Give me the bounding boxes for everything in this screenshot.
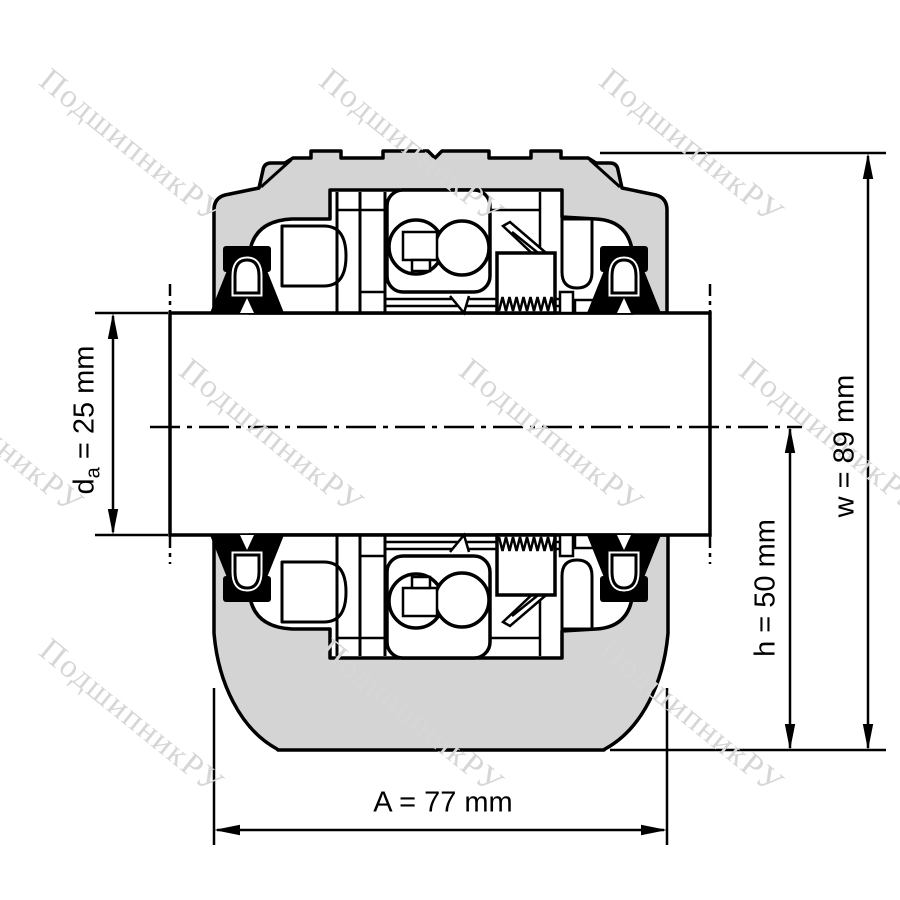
label-bore-subscript: a [83,467,105,478]
label-total-height: w = 89 mm [829,375,862,518]
label-bore-diameter: da = 25 mm [69,346,106,495]
label-center-height: h = 50 mm [750,519,783,657]
arrowhead-down [108,509,118,535]
arrowhead-up [785,427,795,453]
arrowhead-up [863,153,873,179]
technical-drawing-page: ПодшипникРУ ПодшипникРУ ПодшипникРУ Подш… [0,0,900,900]
label-total-width: A = 77 mm [373,787,512,820]
arrowhead-left [214,825,240,835]
arrowhead-down [785,724,795,750]
arrowhead-right [641,825,667,835]
shaft [170,313,710,535]
arrowhead-up [108,313,118,339]
arrowhead-down [863,724,873,750]
label-bore-symbol: d [69,478,101,494]
dimension-bore-diameter [95,313,168,535]
bearing-housing-cross-section [0,0,900,900]
label-bore-value: = 25 mm [69,346,101,468]
dimension-center-height [785,427,795,750]
